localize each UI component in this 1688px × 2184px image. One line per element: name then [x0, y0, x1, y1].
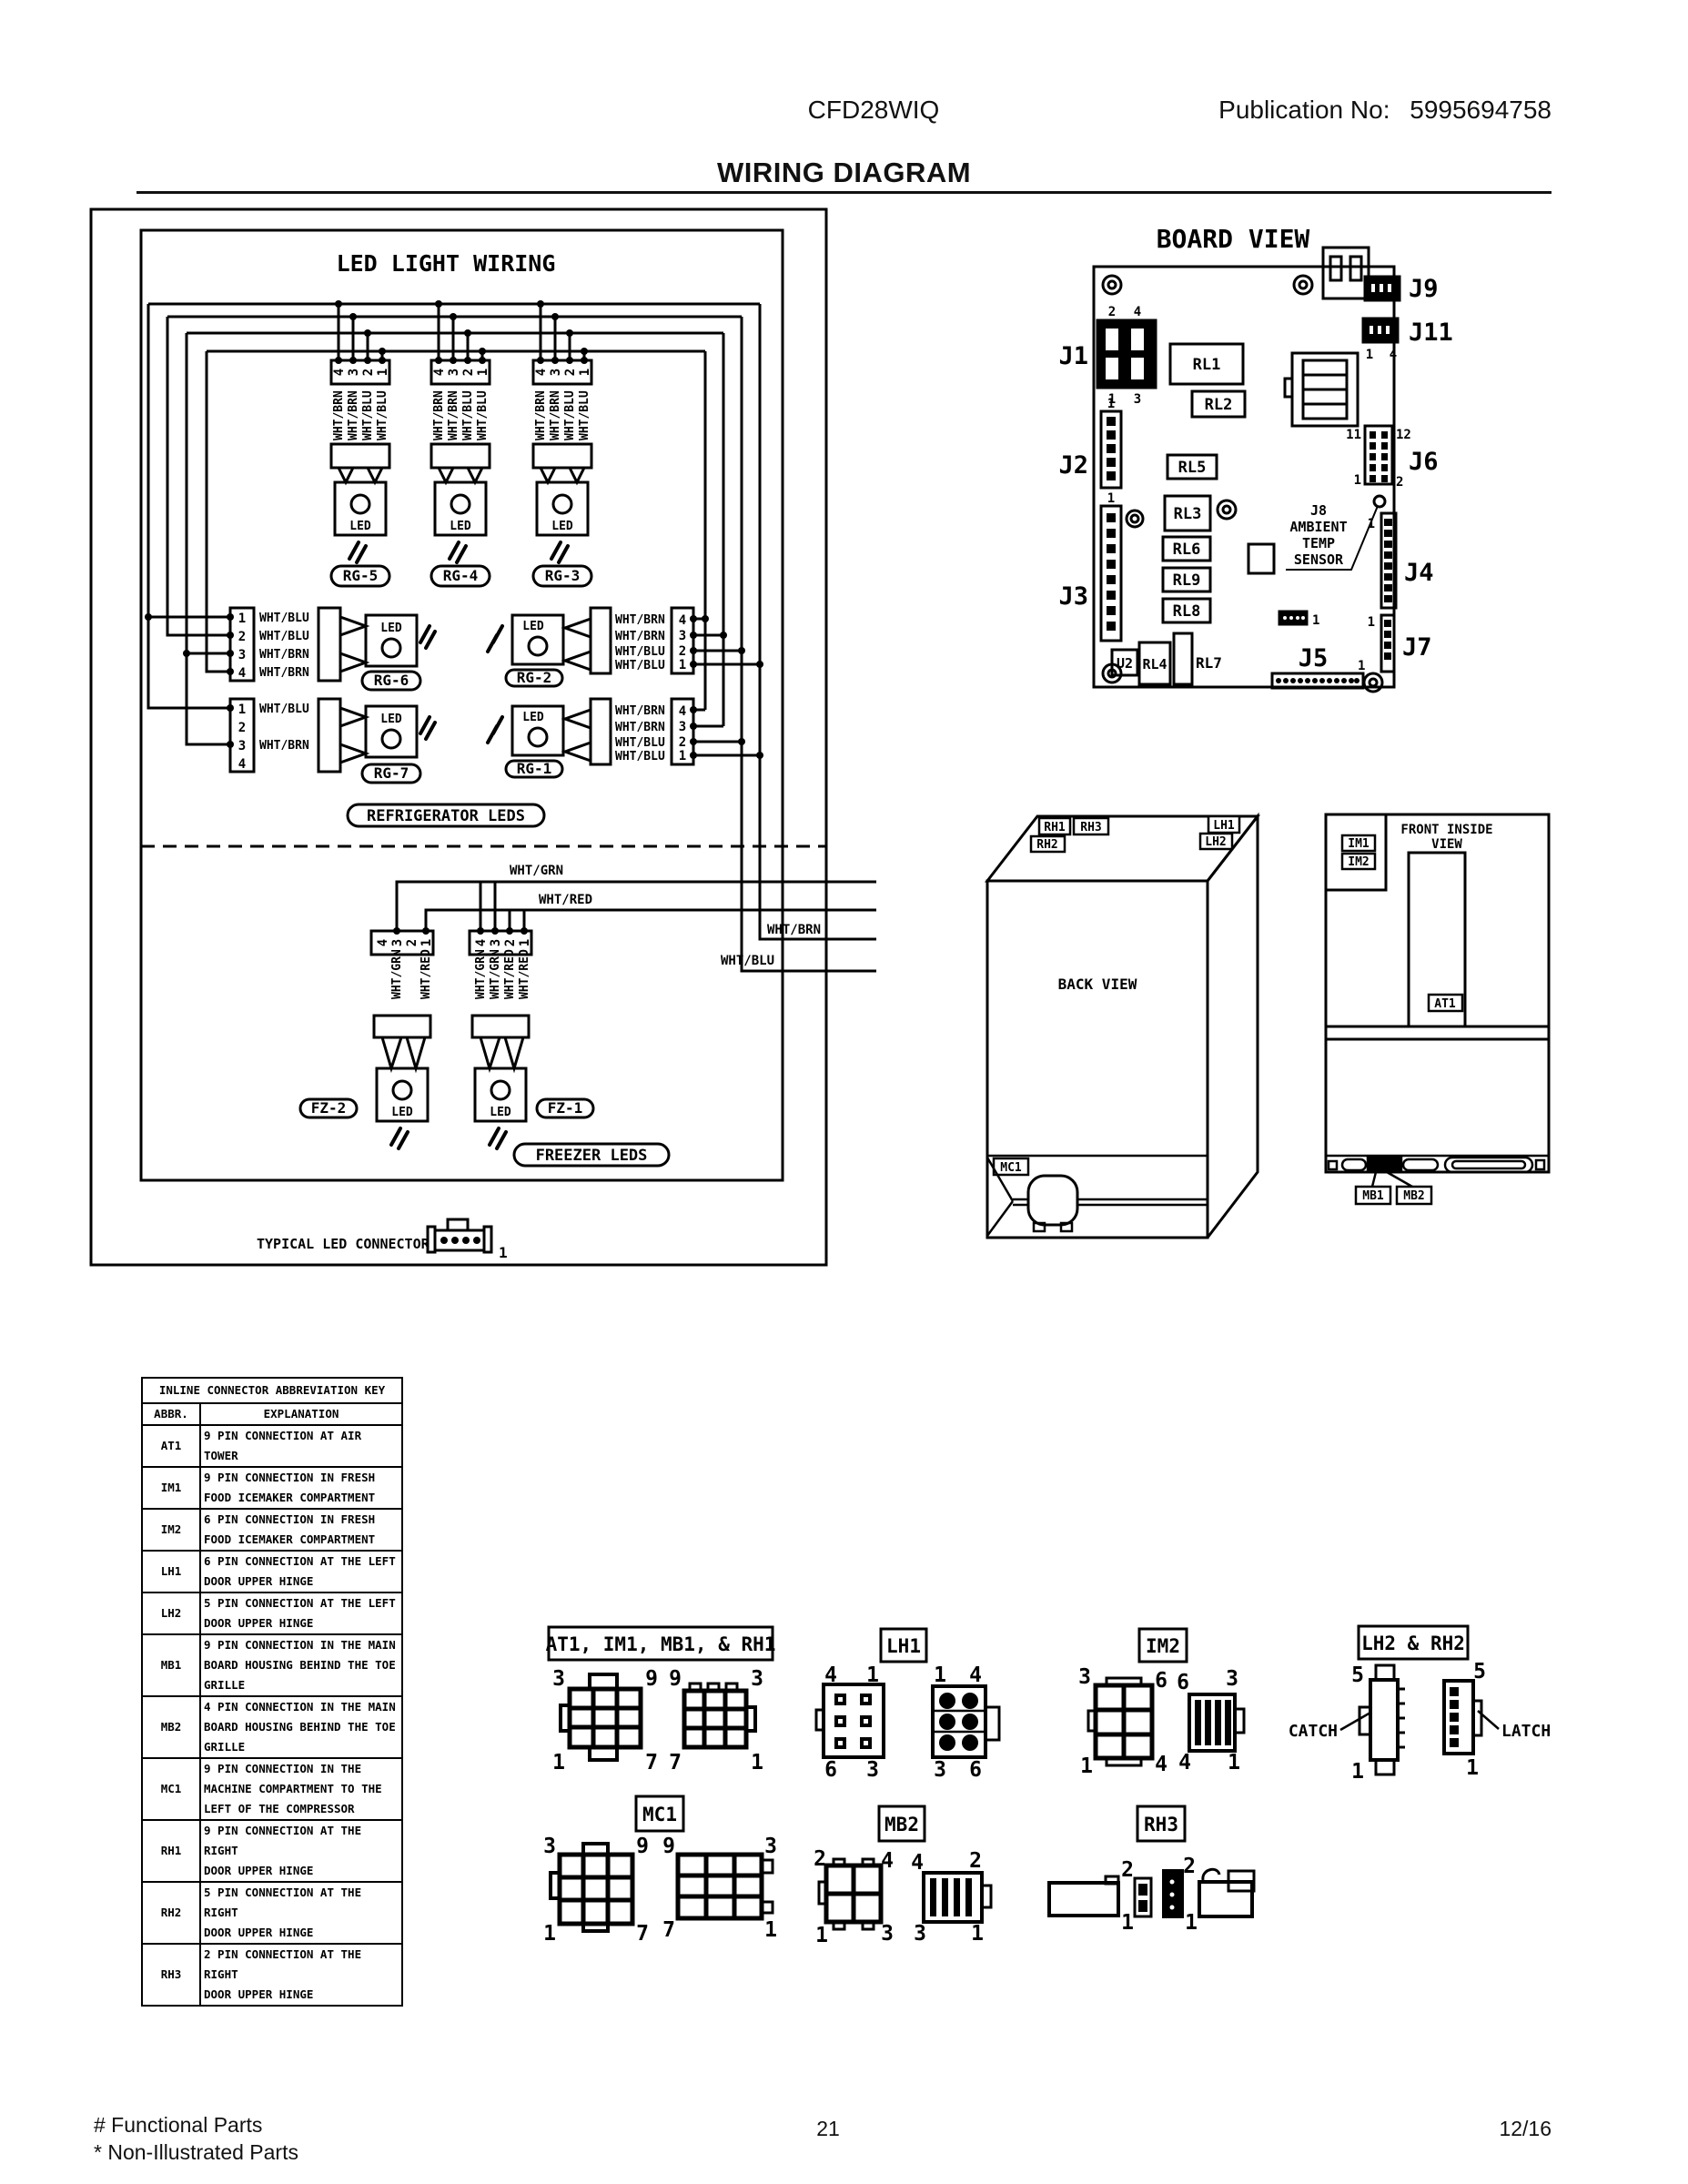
pin-number: 1 — [419, 939, 434, 946]
pin-number: 4 — [679, 704, 686, 719]
mounting-hole — [1103, 276, 1121, 294]
wire-label: WHT/BLU — [615, 750, 665, 763]
j11-label: J11 — [1409, 318, 1453, 347]
pin-number: 9 — [662, 1835, 675, 1858]
pin-number: 6 — [824, 1758, 837, 1782]
group-label: LH1 — [886, 1635, 921, 1657]
nine-pin-connector-front — [561, 1674, 641, 1760]
board-view-title: BOARD VIEW — [1157, 224, 1310, 254]
abbr-cell: LH2 — [143, 1593, 201, 1633]
four-pin-connector-front — [819, 1859, 881, 1929]
wire-label: WHT/BRN — [534, 390, 548, 440]
table-title: INLINE CONNECTOR ABBREVIATION KEY — [143, 1379, 401, 1404]
rg6-led-assembly: 1 2 3 4 WHT/BLU WHT/BLU WHT/BRN WHT/BRN … — [230, 608, 435, 690]
group-mc1: MC1 3 9 1 7 — [543, 1796, 777, 1946]
abbr-cell: IM1 — [143, 1468, 201, 1508]
pin-number: 3 — [552, 1667, 565, 1691]
rg2-led-assembly: LED WHT/BRN WHT/BRN WHT/BLU WHT/BLU 4 3 — [488, 608, 693, 686]
pin-number: 4 — [1178, 1751, 1191, 1774]
rh1-location-label: RH1 — [1044, 821, 1066, 834]
back-view-title: BACK VIEW — [1058, 976, 1137, 993]
two-pin-connector-parts — [1049, 1869, 1254, 1916]
abbr-cell: RH2 — [143, 1883, 201, 1943]
led-label: LED — [450, 520, 471, 533]
group-mb2: MB2 2 4 1 3 — [814, 1806, 991, 1947]
j2-connector: 1 — [1101, 397, 1121, 488]
table-header: ABBR. EXPLANATION — [143, 1404, 401, 1426]
group-label: IM2 — [1146, 1635, 1180, 1657]
rl7-label: RL7 — [1196, 654, 1222, 672]
pin-number: 3 — [238, 739, 246, 753]
light-rays-icon — [488, 717, 502, 743]
pin-number: 9 — [645, 1667, 658, 1691]
table-row: AT1 9 PIN CONNECTION AT AIR TOWER — [143, 1426, 401, 1468]
explanation-line: DOOR UPPER HINGE — [204, 1985, 401, 2005]
toe-grille — [1326, 1156, 1549, 1172]
explanation-line: 9 PIN CONNECTION IN THE — [204, 1759, 401, 1779]
back-view: RH1 RH3 RH2 LH1 LH2 BACK VIEW MC1 — [987, 816, 1258, 1238]
pin-number: 1 — [376, 369, 390, 376]
pin-number: 12 — [1396, 428, 1411, 442]
u2-label: U2 — [1117, 655, 1133, 672]
pin-number: 7 — [636, 1922, 649, 1946]
inline-connector-abbreviation-key: INLINE CONNECTOR ABBREVIATION KEY ABBR. … — [141, 1377, 403, 2007]
pin-number: 3 — [1226, 1667, 1238, 1691]
group-label: MC1 — [642, 1804, 677, 1825]
table-row: RH3 2 PIN CONNECTION AT THE RIGHTDOOR UP… — [143, 1945, 401, 2005]
board-view: BOARD VIEW J9 J11 1 4 — [1058, 224, 1452, 692]
wire-label: WHT/BLU — [615, 645, 665, 659]
table-row: RH1 9 PIN CONNECTION AT THE RIGHTDOOR UP… — [143, 1821, 401, 1883]
pin-number: 9 — [636, 1835, 649, 1858]
heatsink — [1285, 353, 1358, 426]
pin-number: 1 — [543, 1922, 556, 1946]
im1-location-label: IM1 — [1348, 837, 1370, 851]
cabinet-side — [1208, 816, 1258, 1238]
j3-connector: 1 — [1101, 491, 1121, 641]
rl5-label: RL5 — [1178, 459, 1207, 477]
light-rays-icon — [488, 626, 502, 652]
explanation-line: DOOR UPPER HINGE — [204, 1613, 401, 1633]
led-label: LED — [522, 711, 544, 724]
j1-connector: 2 4 1 3 — [1097, 305, 1156, 407]
pin-number: 6 — [1177, 1671, 1189, 1694]
pin-number: 2 — [814, 1847, 826, 1871]
abbr-cell: RH1 — [143, 1821, 201, 1881]
group-label: RH3 — [1144, 1814, 1178, 1835]
wire-label-brn: WHT/BRN — [767, 923, 821, 937]
rl6-label: RL6 — [1173, 541, 1201, 559]
wire-label: WHT/BRN — [259, 739, 309, 753]
rl2-label: RL2 — [1205, 396, 1233, 414]
wire-label: WHT/GRN — [489, 949, 502, 999]
pin-number: 4 — [332, 369, 347, 376]
rl7-relay — [1174, 633, 1192, 684]
five-pin-connector-latch — [1444, 1681, 1481, 1754]
led-label: LED — [349, 520, 371, 533]
pin-number: 1 — [1366, 348, 1373, 362]
abbr-cell: MB2 — [143, 1697, 201, 1757]
group-label: MB2 — [884, 1814, 919, 1835]
rh3-location-label: RH3 — [1080, 821, 1101, 834]
explanation-line: 5 PIN CONNECTION AT THE RIGHT — [204, 1883, 401, 1923]
group-at1-im1-mb1-rh1: AT1, IM1, MB1, & RH1 3 9 1 7 — [546, 1627, 776, 1774]
rg4-label: RG-4 — [443, 567, 479, 584]
explanation-line: BOARD HOUSING BEHIND THE TOE — [204, 1655, 401, 1675]
fz1-led-assembly: 4 3 2 1 WHT/GRN WHT/GRN WHT/RED WHT/RED … — [470, 931, 593, 1148]
pin-number: 3 — [238, 648, 246, 662]
pin-number: 1 — [751, 1751, 763, 1774]
wire-label: WHT/BLU — [376, 390, 389, 440]
led-label: LED — [551, 520, 573, 533]
j1-label: J1 — [1058, 342, 1088, 370]
pin-number: 1 — [476, 369, 490, 376]
wire-label-red: WHT/RED — [539, 893, 592, 907]
pin-number: 2 — [238, 630, 246, 644]
explanation-line: FOOD ICEMAKER COMPARTMENT — [204, 1488, 401, 1508]
abbr-cell: AT1 — [143, 1426, 201, 1466]
mounting-hole — [1218, 500, 1236, 519]
explanation-line: 6 PIN CONNECTION AT THE LEFT — [204, 1552, 401, 1572]
rg7-label: RG-7 — [374, 764, 409, 782]
mounting-hole — [1294, 276, 1312, 294]
pin-number: 4 — [824, 1663, 837, 1687]
pin-number: 3 — [543, 1835, 556, 1858]
j3-label: J3 — [1058, 582, 1088, 611]
led-label: LED — [391, 1106, 413, 1119]
pin-number: 4 — [881, 1849, 894, 1873]
pin-number: 3 — [347, 369, 361, 376]
pin-number: 3 — [390, 939, 405, 946]
fz1-label: FZ-1 — [548, 1099, 583, 1117]
wire-label: WHT/BLU — [259, 703, 309, 716]
pin-number: 1 — [1368, 517, 1375, 531]
wire-label: WHT/BLU — [615, 659, 665, 672]
led-light-wiring-section: LED LIGHT WIRING — [91, 209, 876, 1265]
mb2-location-label: MB2 — [1403, 1189, 1424, 1203]
rg7-led-assembly: 1 2 3 4 WHT/BLU WHT/BRN LED RG-7 — [230, 699, 435, 783]
pin-number: 4 — [534, 369, 549, 376]
abbr-cell: IM2 — [143, 1510, 201, 1550]
cabinet-front — [987, 881, 1208, 1238]
pin-number: 1 — [679, 658, 686, 672]
front-view-title-line2: VIEW — [1431, 837, 1462, 852]
compartment-divider — [1326, 1026, 1549, 1039]
lh1-location-label: LH1 — [1213, 819, 1235, 833]
pin-number: 2 — [969, 1849, 982, 1873]
pin-number: 7 — [645, 1751, 658, 1774]
explanation-line: 9 PIN CONNECTION AT AIR TOWER — [204, 1426, 401, 1466]
table-row: MC1 9 PIN CONNECTION IN THEMACHINE COMPA… — [143, 1759, 401, 1821]
pin-number: 1 — [1312, 613, 1319, 628]
pin-number: 1 — [238, 703, 246, 717]
col-explanation: EXPLANATION — [201, 1404, 401, 1424]
wire-label: WHT/BRN — [259, 666, 309, 680]
table-row: LH2 5 PIN CONNECTION AT THE LEFTDOOR UPP… — [143, 1593, 401, 1635]
explanation-line: GRILLE — [204, 1675, 401, 1695]
wire-label-blu: WHT/BLU — [721, 954, 774, 968]
mounting-hole — [1127, 511, 1143, 527]
explanation-line: FOOD ICEMAKER COMPARTMENT — [204, 1530, 401, 1550]
nine-pin-connector-rear — [678, 1855, 773, 1918]
pin-number: 1 — [1368, 615, 1375, 630]
abbr-cell: MB1 — [143, 1635, 201, 1695]
rg6-label: RG-6 — [374, 672, 409, 689]
rg3-label: RG-3 — [545, 567, 581, 584]
table-row: MB1 9 PIN CONNECTION IN THE MAINBOARD HO… — [143, 1635, 401, 1697]
catch-label: CATCH — [1289, 1722, 1338, 1741]
pin-number: 1 — [1107, 491, 1115, 506]
pin-number: 1 — [1107, 397, 1115, 411]
mb1-location-label: MB1 — [1362, 1189, 1384, 1203]
explanation-line: BOARD HOUSING BEHIND THE TOE — [204, 1717, 401, 1737]
light-rays-icon — [450, 542, 466, 562]
pin-number: 2 — [679, 644, 686, 659]
fz2-label: FZ-2 — [311, 1099, 347, 1117]
j4-connector: 1 — [1368, 513, 1396, 608]
pin-number: 2 — [238, 721, 246, 735]
rg5-led-assembly: 4 3 2 1 WHT/BRN WHT/BRN WHT/BLU WHT/BLU … — [331, 360, 390, 586]
wire-label: WHT/BLU — [461, 390, 475, 440]
table-row: LH1 6 PIN CONNECTION AT THE LEFTDOOR UPP… — [143, 1552, 401, 1593]
pin-number: 2 — [1108, 305, 1116, 319]
pin-number: 4 — [1390, 348, 1397, 362]
wire-label: WHT/RED — [518, 949, 531, 999]
pin-number: 3 — [866, 1758, 879, 1782]
pin-number: 3 — [549, 369, 563, 376]
abbr-cell: MC1 — [143, 1759, 201, 1819]
rl8-label: RL8 — [1173, 602, 1201, 621]
nine-pin-connector-rear — [684, 1683, 755, 1747]
rg5-label: RG-5 — [343, 567, 379, 584]
pin-number: 3 — [751, 1667, 763, 1691]
wire-label: WHT/BRN — [615, 630, 665, 643]
pin-number: 3 — [679, 629, 686, 643]
pin-number: 3 — [914, 1922, 926, 1946]
led-outer-box — [91, 209, 826, 1265]
light-rays-icon — [551, 542, 568, 562]
pin-number: 1 — [971, 1922, 984, 1946]
pin-number: 3 — [934, 1758, 946, 1782]
wire-label: WHT/BRN — [432, 390, 446, 440]
explanation-line: 9 PIN CONNECTION IN THE MAIN — [204, 1635, 401, 1655]
six-pin-connector-rear — [933, 1686, 999, 1757]
wire-label: WHT/BRN — [615, 613, 665, 627]
wire-label: WHT/BLU — [578, 390, 591, 440]
wire-label: WHT/BLU — [476, 390, 490, 440]
pin-number: 4 — [376, 939, 390, 946]
light-rays-icon — [420, 717, 435, 739]
pin-number: 1 — [1228, 1751, 1240, 1774]
pin-number: 6 — [1155, 1669, 1167, 1693]
j6-label: J6 — [1409, 448, 1439, 476]
pin-number: 3 — [881, 1922, 894, 1946]
wire-label: WHT/BLU — [361, 390, 375, 440]
group-im2: IM2 3 6 1 4 — [1078, 1629, 1244, 1778]
pin-number: 3 — [447, 369, 461, 376]
abbr-cell: LH1 — [143, 1552, 201, 1592]
pin-number: 11 — [1346, 428, 1361, 442]
j8-label-line: AMBIENT — [1289, 519, 1347, 535]
typical-led-connector-label: TYPICAL LED CONNECTOR — [257, 1236, 430, 1252]
wire-label: WHT/BRN — [347, 390, 360, 440]
nine-pin-connector-front — [551, 1844, 632, 1931]
pin-number: 1 — [1466, 1756, 1479, 1780]
rl3-label: RL3 — [1174, 505, 1202, 523]
j7-connector: 1 — [1368, 615, 1394, 672]
rl4-label: RL4 — [1142, 656, 1167, 672]
pin-number: 4 — [679, 613, 686, 628]
pin-number: 6 — [969, 1758, 982, 1782]
pin-number: 1 — [238, 612, 246, 626]
group-lh1: LH1 4 1 — [816, 1629, 999, 1782]
pin-number: 3 — [1134, 392, 1141, 407]
wire-label: WHT/BRN — [332, 390, 346, 440]
j8-label-line: SENSOR — [1294, 551, 1344, 568]
light-rays-icon — [349, 542, 366, 562]
wire-label: WHT/RED — [503, 949, 517, 999]
six-pin-connector-front — [816, 1684, 884, 1757]
pin-number: 4 — [432, 369, 447, 376]
j2-label: J2 — [1058, 451, 1088, 480]
pin-number: 4 — [238, 666, 246, 681]
explanation-line: 6 PIN CONNECTION IN FRESH — [204, 1510, 401, 1530]
wire-label: WHT/BRN — [259, 648, 309, 662]
fz2-led-assembly: 4 3 2 1 WHT/GRN WHT/RED LED FZ-2 — [300, 931, 434, 1148]
pin-number: 2 — [563, 369, 578, 376]
pin-number: 2 — [1396, 475, 1403, 490]
rg4-led-assembly: 4 3 2 1 WHT/BRN WHT/BRN WHT/BLU WHT/BLU … — [431, 360, 490, 586]
at1-location-label: AT1 — [1434, 997, 1456, 1011]
rg3-led-assembly: 4 3 2 1 WHT/BRN WHT/BRN WHT/BLU WHT/BLU … — [533, 360, 592, 586]
explanation-line: MACHINE COMPARTMENT TO THE — [204, 1779, 401, 1799]
pin-number: 2 — [361, 369, 376, 376]
light-rays-icon — [391, 1128, 408, 1148]
group-label: AT1, IM1, MB1, & RH1 — [546, 1633, 776, 1655]
pin-number: 1 — [679, 749, 686, 763]
wire-label: WHT/BRN — [615, 721, 665, 734]
four-pin-connector-rear — [924, 1873, 991, 1922]
pin-number: 4 — [474, 939, 489, 946]
pin-number: 3 — [1078, 1665, 1091, 1689]
wire-label: WHT/BLU — [259, 612, 309, 625]
abbr-cell: RH3 — [143, 1945, 201, 2005]
pin-number: 1 — [1080, 1754, 1093, 1778]
wire-label: WHT/BRN — [447, 390, 460, 440]
col-abbr: ABBR. — [143, 1404, 201, 1424]
pin-number: 3 — [679, 720, 686, 734]
wire-label-grn: WHT/GRN — [510, 864, 563, 878]
j8-label-line: TEMP — [1302, 535, 1335, 551]
pin-number: 1 — [552, 1751, 565, 1774]
pin-number: 4 — [1155, 1753, 1167, 1776]
pin-number: 4 — [911, 1851, 924, 1875]
freezer-leds-label: FREEZER LEDS — [536, 1147, 648, 1165]
pin-number: 2 — [1121, 1858, 1134, 1882]
explanation-line: GRILLE — [204, 1737, 401, 1757]
pin-number: 5 — [1473, 1660, 1486, 1683]
mc1-location-label: MC1 — [1000, 1161, 1022, 1175]
explanation-line: DOOR UPPER HINGE — [204, 1923, 401, 1943]
wire-label: WHT/BLU — [615, 736, 665, 750]
typical-led-connector: TYPICAL LED CONNECTOR 1 — [257, 1219, 508, 1261]
pin-number: 2 — [405, 939, 419, 946]
front-view-title-line1: FRONT INSIDE — [1400, 823, 1492, 837]
pin-number: 1 — [518, 939, 532, 946]
pin-number: 7 — [669, 1751, 682, 1774]
pin-number: 4 — [1134, 305, 1141, 319]
revision-date: 12/16 — [1365, 2117, 1552, 2141]
footnote-non-illustrated: * Non-Illustrated Parts — [94, 2140, 298, 2165]
explanation-line: DOOR UPPER HINGE — [204, 1861, 401, 1881]
mounting-hole — [1364, 673, 1382, 692]
typical-connector-pin1: 1 — [499, 1244, 508, 1261]
latch-label: LATCH — [1501, 1722, 1551, 1741]
rh2-location-label: RH2 — [1036, 838, 1057, 852]
led-label: LED — [380, 713, 402, 726]
light-rays-icon — [420, 626, 435, 648]
front-inside-view: IM1 IM2 FRONT INSIDE VIEW AT1 — [1326, 814, 1549, 1204]
lh2-location-label: LH2 — [1205, 835, 1226, 849]
group-label: LH2 & RH2 — [1361, 1633, 1465, 1654]
pin-number: 3 — [764, 1835, 777, 1858]
aux-connector: 1 — [1279, 612, 1319, 628]
led-section-title: LED LIGHT WIRING — [337, 250, 556, 277]
table-row: IM2 6 PIN CONNECTION IN FRESHFOOD ICEMAK… — [143, 1510, 401, 1552]
pin-number: 1 — [1354, 473, 1361, 488]
pin-number: 1 — [1185, 1911, 1198, 1935]
refrigerator-leds-label: REFRIGERATOR LEDS — [367, 807, 525, 825]
board-top-connector — [1323, 248, 1369, 298]
pin-number: 7 — [662, 1918, 675, 1942]
j5-label: J5 — [1299, 644, 1329, 672]
im2-location-label: IM2 — [1348, 855, 1369, 869]
led-label: LED — [490, 1106, 511, 1119]
board-component — [1248, 544, 1274, 573]
wire-label: WHT/RED — [419, 949, 433, 999]
j8-label-line: J8 — [1310, 502, 1327, 519]
group-rh3: RH3 2 1 2 — [1049, 1806, 1254, 1935]
light-rays-icon — [490, 1128, 506, 1148]
led-label: LED — [522, 620, 544, 633]
wire-label: WHT/GRN — [390, 949, 404, 999]
explanation-line: 9 PIN CONNECTION IN FRESH — [204, 1468, 401, 1488]
wire-label: WHT/BLU — [563, 390, 577, 440]
group-lh2-rh2: LH2 & RH2 5 1 CATCH — [1289, 1626, 1551, 1784]
j4-label: J4 — [1404, 559, 1434, 587]
pin-number: 5 — [1351, 1663, 1364, 1687]
explanation-line: 9 PIN CONNECTION AT THE RIGHT — [204, 1821, 401, 1861]
table-row: RH2 5 PIN CONNECTION AT THE RIGHTDOOR UP… — [143, 1883, 401, 1945]
explanation-line: 5 PIN CONNECTION AT THE LEFT — [204, 1593, 401, 1613]
rl9-label: RL9 — [1173, 571, 1201, 590]
pin-number: 1 — [934, 1663, 946, 1687]
icemaker-compartment — [1326, 814, 1386, 890]
explanation-line: LEFT OF THE COMPRESSOR — [204, 1799, 401, 1819]
table-row: MB2 4 PIN CONNECTION IN THE MAINBOARD HO… — [143, 1697, 401, 1759]
j9-label: J9 — [1409, 275, 1439, 303]
pin-number: 3 — [489, 939, 503, 946]
pin-number: 1 — [1121, 1911, 1134, 1935]
pin-number: 2 — [679, 735, 686, 750]
wire-label: WHT/BRN — [615, 704, 665, 718]
j7-label: J7 — [1402, 633, 1432, 662]
pin-number: 2 — [461, 369, 476, 376]
wire-label: WHT/BRN — [549, 390, 562, 440]
pin-number: 4 — [238, 757, 246, 772]
j8-ambient-temp-sensor: J8 AMBIENT TEMP SENSOR — [1286, 496, 1385, 570]
j6-connector: 11 12 1 2 — [1346, 426, 1411, 490]
